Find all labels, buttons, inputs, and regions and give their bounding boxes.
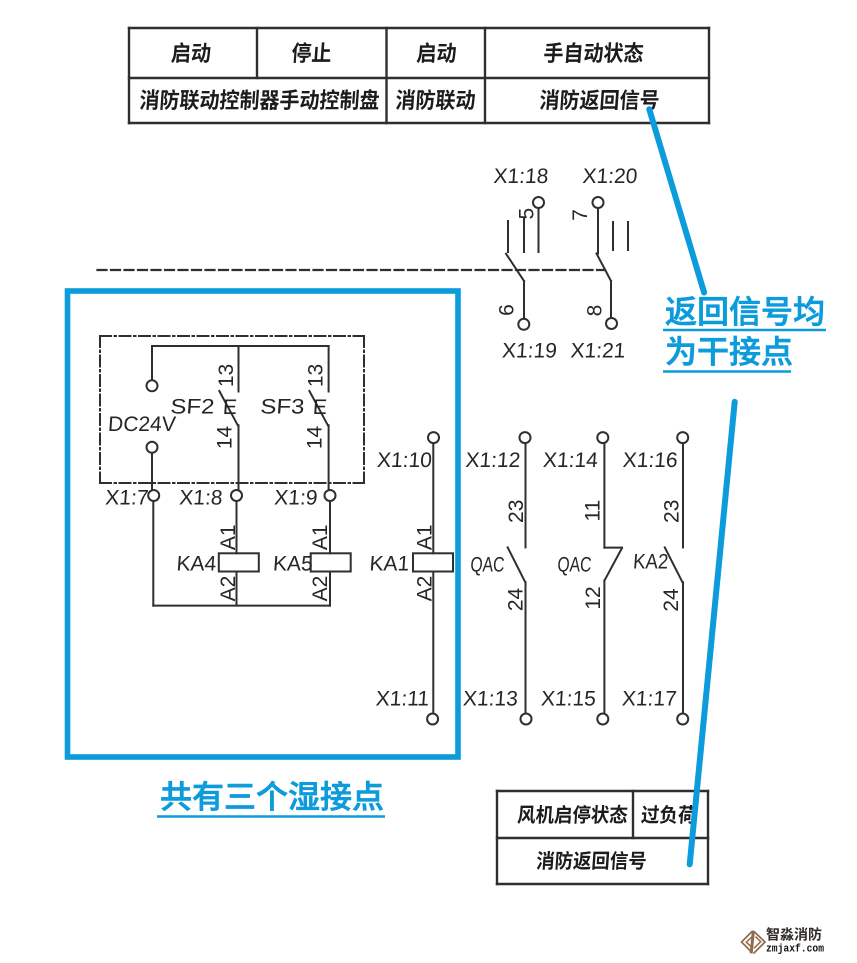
svg-text:KA1: KA1	[369, 553, 410, 576]
svg-text:14: 14	[214, 426, 237, 450]
svg-text:zmjaxf.com: zmjaxf.com	[766, 944, 824, 956]
svg-text:X1:13: X1:13	[462, 687, 518, 710]
svg-text:13: 13	[305, 364, 328, 387]
svg-text:A2: A2	[217, 576, 240, 602]
svg-text:X1:9: X1:9	[274, 487, 319, 510]
svg-text:A1: A1	[309, 524, 332, 550]
svg-text:6: 6	[496, 304, 519, 316]
svg-text:X1:7: X1:7	[105, 487, 150, 510]
svg-text:X1:15: X1:15	[540, 687, 596, 710]
svg-text:SF2: SF2	[170, 396, 216, 419]
svg-text:X1:17: X1:17	[621, 687, 677, 710]
svg-text:24: 24	[505, 588, 528, 612]
svg-text:KA4: KA4	[176, 553, 218, 576]
svg-text:8: 8	[584, 305, 607, 317]
svg-text:11: 11	[582, 500, 605, 522]
svg-text:A1: A1	[217, 524, 240, 550]
svg-text:23: 23	[505, 500, 528, 523]
svg-text:X1:11: X1:11	[375, 687, 430, 710]
svg-text:X1:8: X1:8	[179, 487, 224, 510]
svg-text:A2: A2	[414, 576, 437, 602]
svg-text:7: 7	[569, 209, 592, 221]
svg-text:SF3: SF3	[260, 396, 306, 419]
svg-text:A2: A2	[309, 576, 332, 602]
svg-text:QAC: QAC	[470, 553, 506, 576]
svg-text:QAC: QAC	[557, 553, 593, 576]
svg-text:X1:12: X1:12	[465, 449, 521, 472]
svg-text:KA2: KA2	[632, 551, 669, 574]
svg-text:X1:10: X1:10	[376, 449, 432, 472]
svg-text:X1:21: X1:21	[570, 340, 626, 363]
svg-text:13: 13	[215, 364, 238, 387]
svg-text:KA5: KA5	[272, 553, 313, 576]
svg-text:12: 12	[582, 586, 605, 609]
svg-text:X1:20: X1:20	[582, 165, 638, 188]
svg-text:X1:19: X1:19	[501, 340, 557, 363]
svg-text:5: 5	[516, 208, 539, 220]
svg-text:A1: A1	[414, 524, 437, 550]
svg-text:X1:18: X1:18	[493, 165, 549, 188]
svg-text:X1:14: X1:14	[542, 449, 599, 472]
svg-text:24: 24	[660, 588, 683, 612]
svg-text:E: E	[222, 396, 238, 419]
svg-text:14: 14	[304, 426, 327, 450]
svg-text:E: E	[312, 396, 328, 419]
svg-text:DC24V: DC24V	[107, 413, 176, 436]
svg-text:23: 23	[661, 500, 684, 523]
svg-text:X1:16: X1:16	[622, 449, 678, 472]
